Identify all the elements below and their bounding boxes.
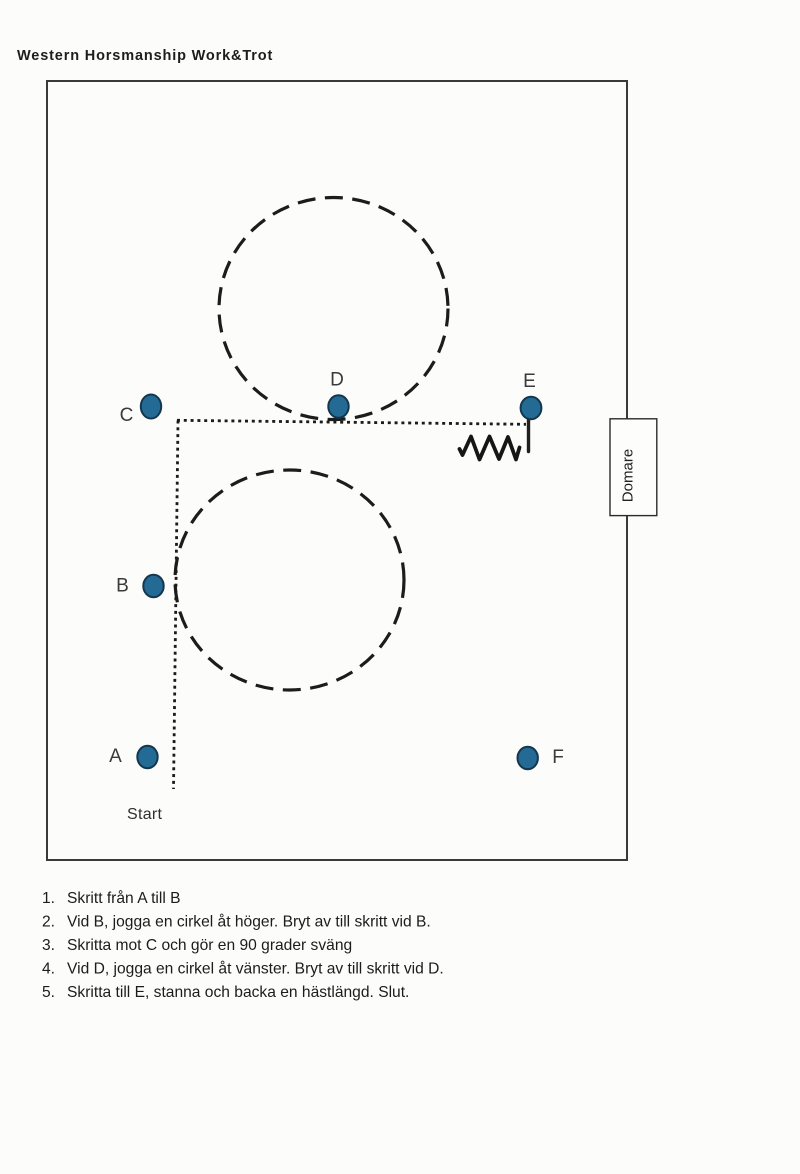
svg-text:4.: 4. [42,961,55,978]
svg-text:5.: 5. [42,984,55,1001]
svg-text:E: E [523,371,536,392]
svg-text:Vid B, jogga en cirkel åt höge: Vid B, jogga en cirkel åt höger. Bryt av… [67,913,431,931]
svg-text:B: B [116,576,129,597]
svg-text:Vid D, jogga en cirkel åt väns: Vid D, jogga en cirkel åt vänster. Bryt … [67,960,444,978]
svg-text:3.: 3. [42,937,55,954]
svg-text:Domare: Domare [620,449,637,502]
svg-text:D: D [330,370,344,391]
svg-text:2.: 2. [42,914,55,931]
svg-text:Skritta mot C och gör en 90 gr: Skritta mot C och gör en 90 grader sväng [67,937,352,954]
svg-text:A: A [109,746,122,767]
svg-text:Skritta till E, stanna och bac: Skritta till E, stanna och backa en häst… [67,984,409,1001]
svg-text:Skritt från A till B: Skritt från A till B [67,889,181,907]
svg-text:F: F [552,747,564,768]
svg-text:Western Horsmanship Work&Trot: Western Horsmanship Work&Trot [17,48,273,64]
svg-text:1.: 1. [42,890,55,907]
svg-text:Start: Start [127,806,163,823]
svg-text:C: C [120,405,134,426]
